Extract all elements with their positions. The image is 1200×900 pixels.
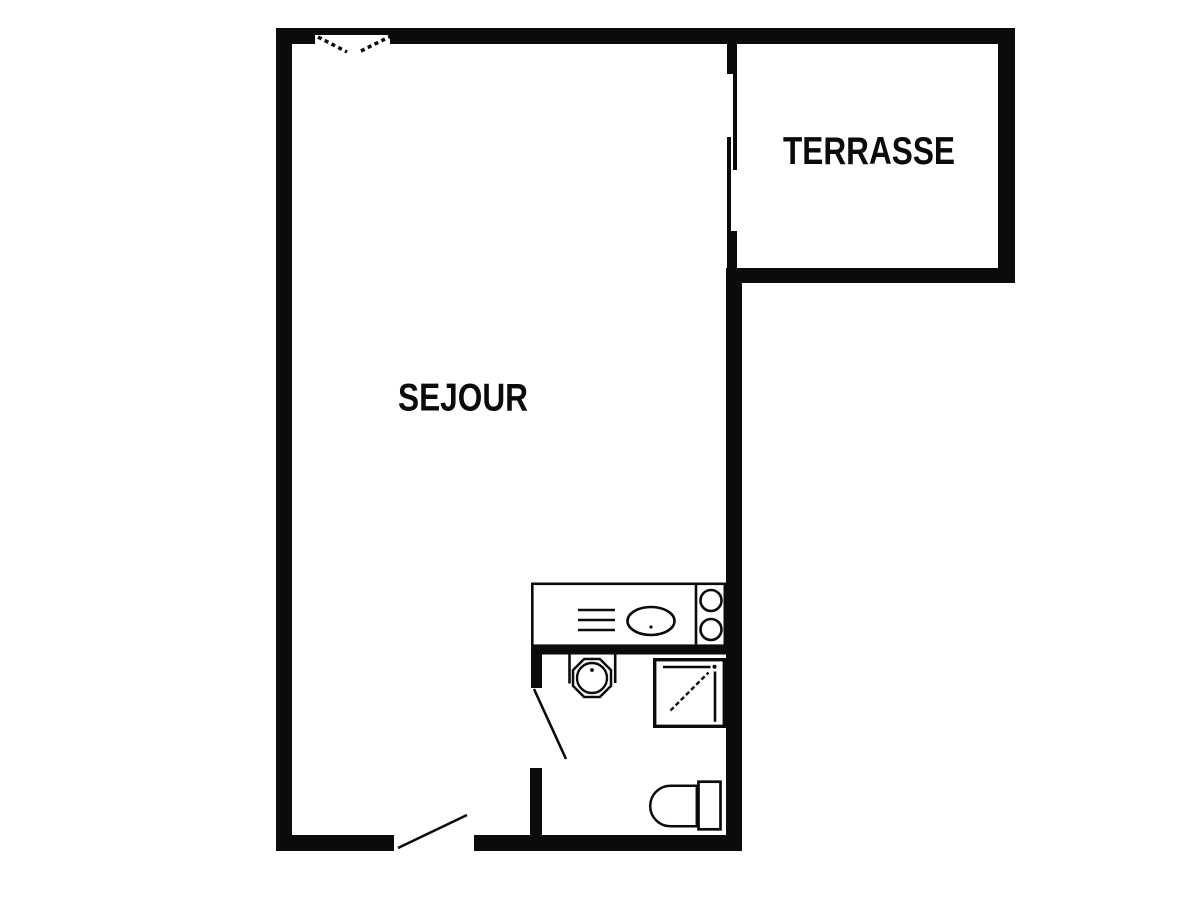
svg-text:SEJOUR: SEJOUR [398, 377, 528, 420]
svg-text:TERRASSE: TERRASSE [783, 130, 955, 173]
